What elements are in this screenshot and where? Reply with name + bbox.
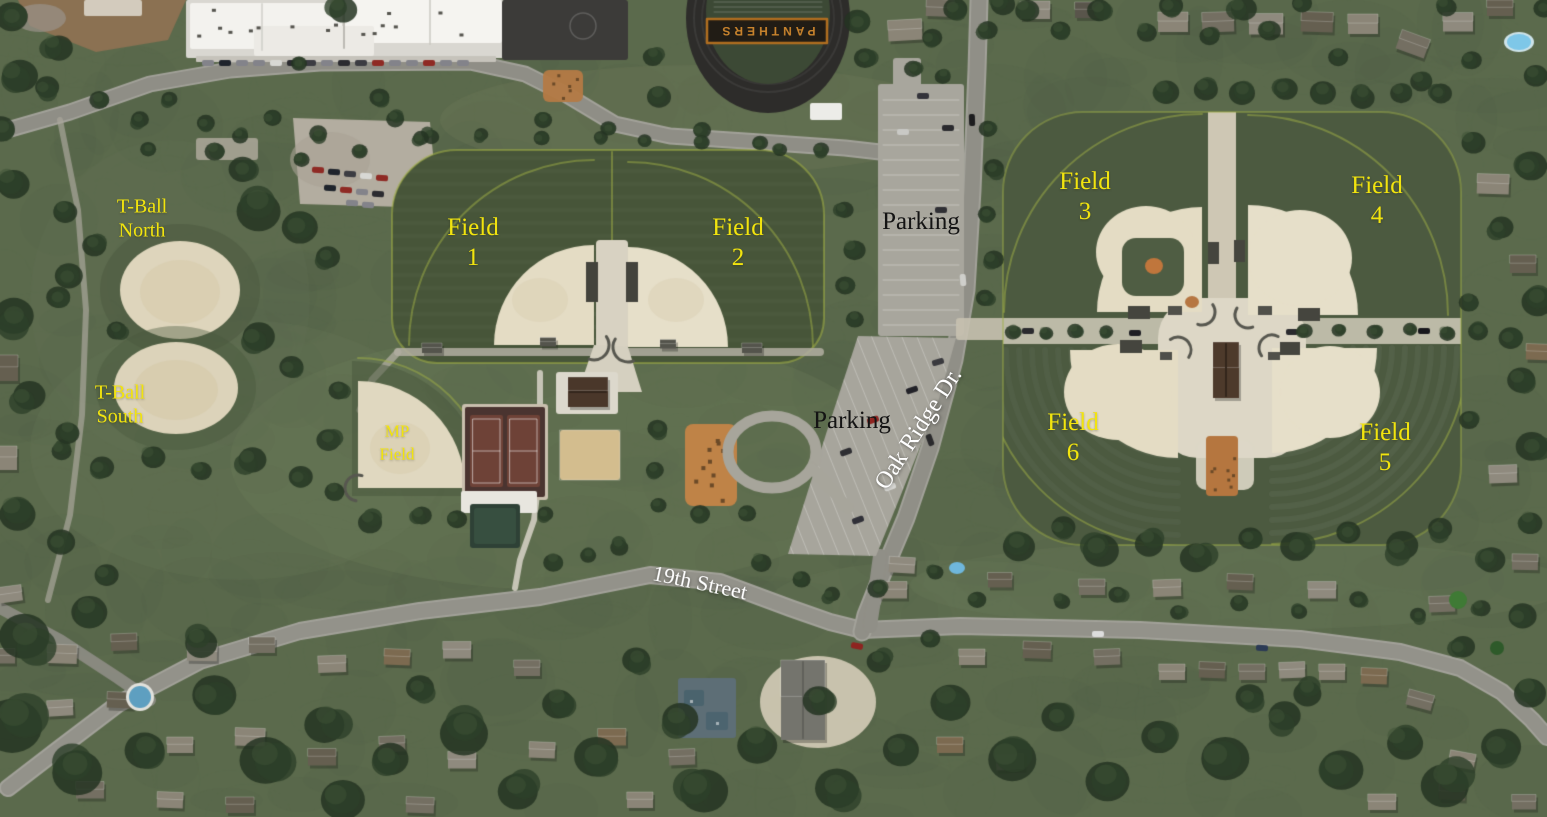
label-line: 1 xyxy=(447,243,498,273)
label-line: 4 xyxy=(1351,201,1402,231)
label-field-5: Field 5 xyxy=(1359,418,1410,478)
satellite-map: T-Ball North T-Ball South Field 1 Field … xyxy=(0,0,1547,817)
label-line: Field xyxy=(380,443,415,466)
label-line: 6 xyxy=(1047,438,1098,468)
label-line: Field xyxy=(1359,418,1410,448)
label-line: 5 xyxy=(1359,448,1410,478)
label-parking-south: Parking xyxy=(813,407,891,435)
label-line: Field xyxy=(712,213,763,243)
label-line: Field xyxy=(447,213,498,243)
label-line: T-Ball xyxy=(95,381,145,405)
label-parking-north: Parking xyxy=(882,208,960,236)
label-mp-field: MP Field xyxy=(380,420,415,467)
aerial-imagery-canvas xyxy=(0,0,1547,817)
label-line: Field xyxy=(1059,167,1110,197)
label-line: North xyxy=(117,219,167,243)
label-field-4: Field 4 xyxy=(1351,171,1402,231)
label-line: T-Ball xyxy=(117,195,167,219)
label-stadium-endzone: PANTHERS xyxy=(718,24,815,38)
label-line: 3 xyxy=(1059,197,1110,227)
label-line: Field xyxy=(1351,171,1402,201)
label-line: Field xyxy=(1047,408,1098,438)
label-line: South xyxy=(95,405,145,429)
label-t-ball-south: T-Ball South xyxy=(95,381,145,428)
label-field-2: Field 2 xyxy=(712,213,763,273)
label-field-1: Field 1 xyxy=(447,213,498,273)
label-field-6: Field 6 xyxy=(1047,408,1098,468)
label-line: MP xyxy=(380,420,415,443)
label-t-ball-north: T-Ball North xyxy=(117,195,167,242)
label-line: 2 xyxy=(712,243,763,273)
label-field-3: Field 3 xyxy=(1059,167,1110,227)
